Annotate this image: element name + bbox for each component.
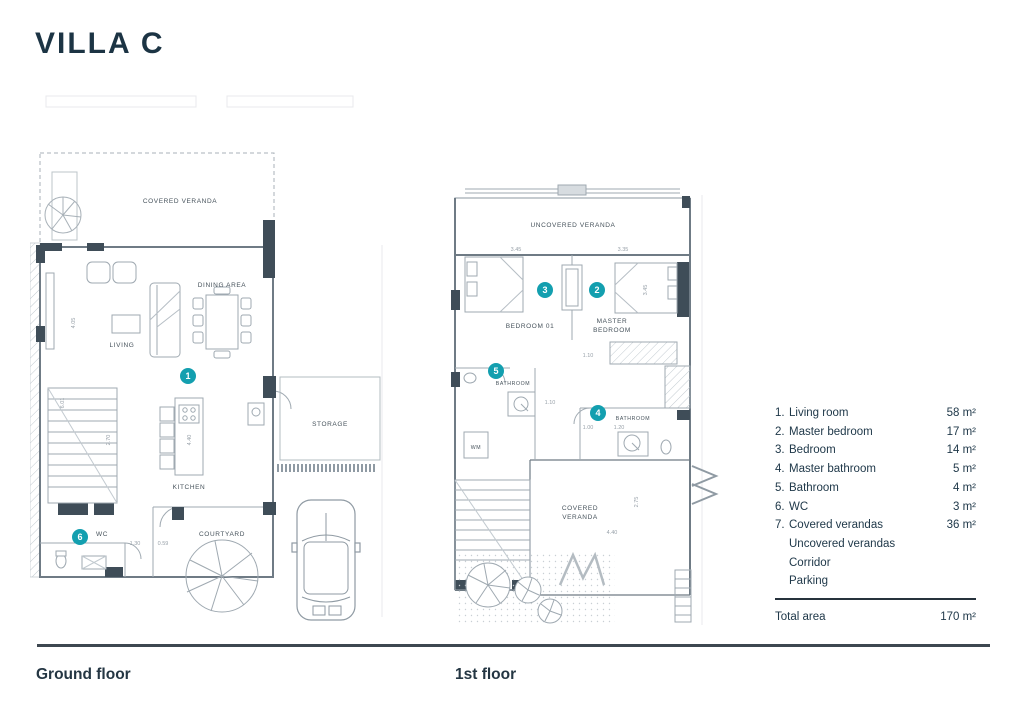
legend-label: Master bathroom bbox=[789, 460, 953, 479]
legend-area: 36 m² bbox=[947, 516, 976, 535]
legend-row: 4. Master bathroom 5 m² bbox=[775, 460, 976, 479]
legend-num: 7. bbox=[775, 516, 789, 535]
bed1-dim: 3.45 bbox=[511, 247, 522, 253]
legend-row: 5. Bathroom 4 m² bbox=[775, 479, 976, 498]
legend-label: Uncovered verandas bbox=[789, 535, 976, 554]
first-floor-plan: UNCOVERED VERANDA bbox=[440, 170, 750, 640]
legend-num: 2. bbox=[775, 423, 789, 442]
ground-floor-caption: Ground floor bbox=[36, 666, 131, 684]
covered-veranda-label-1: COVERED bbox=[562, 505, 598, 512]
room-badge-living: 1 bbox=[180, 368, 196, 384]
legend-area: 17 m² bbox=[947, 423, 976, 442]
legend-total-row: Total area 170 m² bbox=[775, 598, 976, 625]
legend-area: 4 m² bbox=[953, 479, 976, 498]
legend-row: 6. WC 3 m² bbox=[775, 498, 976, 517]
bedroom01-label: BEDROOM 01 bbox=[506, 323, 555, 330]
legend-num: 1. bbox=[775, 404, 789, 423]
dining-area-label: DINING AREA bbox=[198, 282, 247, 289]
ground-floor-drawing: COVERED VERANDA bbox=[30, 95, 400, 640]
covered-veranda-area: COVERED VERANDA bbox=[40, 153, 274, 247]
legend-num bbox=[775, 535, 789, 554]
garden bbox=[455, 552, 615, 625]
legend-num: 4. bbox=[775, 460, 789, 479]
room-badge-bedroom: 3 bbox=[537, 282, 553, 298]
legend-area: 5 m² bbox=[953, 460, 976, 479]
room-badge-bathroom: 5 bbox=[488, 363, 504, 379]
ground-floor-plan: COVERED VERANDA bbox=[30, 95, 400, 640]
legend-label: Living room bbox=[789, 404, 947, 423]
legend-row: Corridor bbox=[775, 554, 976, 573]
bath-small-dim: 1.10 bbox=[545, 400, 556, 406]
legend-label: Bathroom bbox=[789, 479, 953, 498]
bath-dim-b: 1.20 bbox=[614, 425, 625, 431]
storage-label: STORAGE bbox=[312, 421, 348, 428]
legend-label: Bedroom bbox=[789, 441, 947, 460]
legend-row: Parking bbox=[775, 572, 976, 591]
legend-num: 5. bbox=[775, 479, 789, 498]
kitchen-dim: 4.40 bbox=[187, 435, 193, 446]
uncovered-veranda-area bbox=[455, 185, 690, 255]
legend-row: Uncovered verandas bbox=[775, 535, 976, 554]
left-dim-1: 4.05 bbox=[71, 318, 77, 329]
legend-area: 14 m² bbox=[947, 441, 976, 460]
wardrobe bbox=[610, 342, 690, 408]
master-bedroom-label-1: MASTER bbox=[597, 318, 628, 325]
legend-area: 3 m² bbox=[953, 498, 976, 517]
wc-label: WC bbox=[96, 531, 108, 538]
bathroom-label: BATHROOM bbox=[496, 381, 530, 387]
living-label: LIVING bbox=[110, 342, 135, 349]
covered-veranda-label-2: VERANDA bbox=[562, 514, 598, 521]
bed2-dim-v: 3.45 bbox=[643, 285, 649, 296]
veranda-dim-h: 2.75 bbox=[634, 497, 640, 508]
legend-label: WC bbox=[789, 498, 953, 517]
wc-dim-a: 1.30 bbox=[130, 541, 141, 547]
car-icon bbox=[292, 500, 360, 620]
stairs-dim: 2.70 bbox=[106, 435, 112, 446]
room-badge-wc: 6 bbox=[72, 529, 88, 545]
corridor-dim: 1.10 bbox=[583, 353, 594, 359]
legend-num: 6. bbox=[775, 498, 789, 517]
legend-row: 2. Master bedroom 17 m² bbox=[775, 423, 976, 442]
room-badge-master-bathroom: 4 bbox=[590, 405, 606, 421]
room-badge-master-bedroom: 2 bbox=[589, 282, 605, 298]
legend-row: 7. Covered verandas 36 m² bbox=[775, 516, 976, 535]
legend-label: Covered verandas bbox=[789, 516, 947, 535]
legend-area: 58 m² bbox=[947, 404, 976, 423]
total-value: 170 m² bbox=[940, 609, 976, 625]
legend-label: Corridor bbox=[789, 554, 976, 573]
ladder-detail bbox=[675, 570, 691, 622]
legend-row: 3. Bedroom 14 m² bbox=[775, 441, 976, 460]
kitchen-label: KITCHEN bbox=[173, 484, 206, 491]
master-bathroom-fixtures bbox=[618, 432, 671, 456]
master-bathroom-label: BATHROOM bbox=[616, 416, 650, 422]
bed2-dim: 3.35 bbox=[618, 247, 629, 253]
balcony-detail bbox=[692, 466, 716, 504]
legend-num bbox=[775, 554, 789, 573]
left-dim-2: 6.01 bbox=[60, 398, 66, 409]
legend-num bbox=[775, 572, 789, 591]
first-floor-caption: 1st floor bbox=[455, 666, 516, 684]
page-title: VILLA C bbox=[35, 27, 165, 61]
legend-label: Parking bbox=[789, 572, 976, 591]
master-bedroom-label-2: BEDROOM bbox=[593, 327, 631, 334]
legend-num: 3. bbox=[775, 441, 789, 460]
veranda-dim-w: 4.40 bbox=[607, 530, 618, 536]
courtyard-label: COURTYARD bbox=[199, 531, 245, 538]
total-label: Total area bbox=[775, 609, 940, 625]
covered-veranda-label: COVERED VERANDA bbox=[143, 198, 217, 205]
legend-row: 1. Living room 58 m² bbox=[775, 404, 976, 423]
footer-divider bbox=[37, 644, 990, 647]
floorplan-sheet: VILLA C bbox=[0, 0, 1024, 721]
wc-dim-b: 0.59 bbox=[158, 541, 169, 547]
bath-dim-a: 1.00 bbox=[583, 425, 594, 431]
legend-label: Master bedroom bbox=[789, 423, 947, 442]
uncovered-veranda-label: UNCOVERED VERANDA bbox=[531, 222, 616, 229]
room-legend: 1. Living room 58 m² 2. Master bedroom 1… bbox=[775, 404, 976, 625]
wm-label: WM bbox=[471, 445, 481, 451]
